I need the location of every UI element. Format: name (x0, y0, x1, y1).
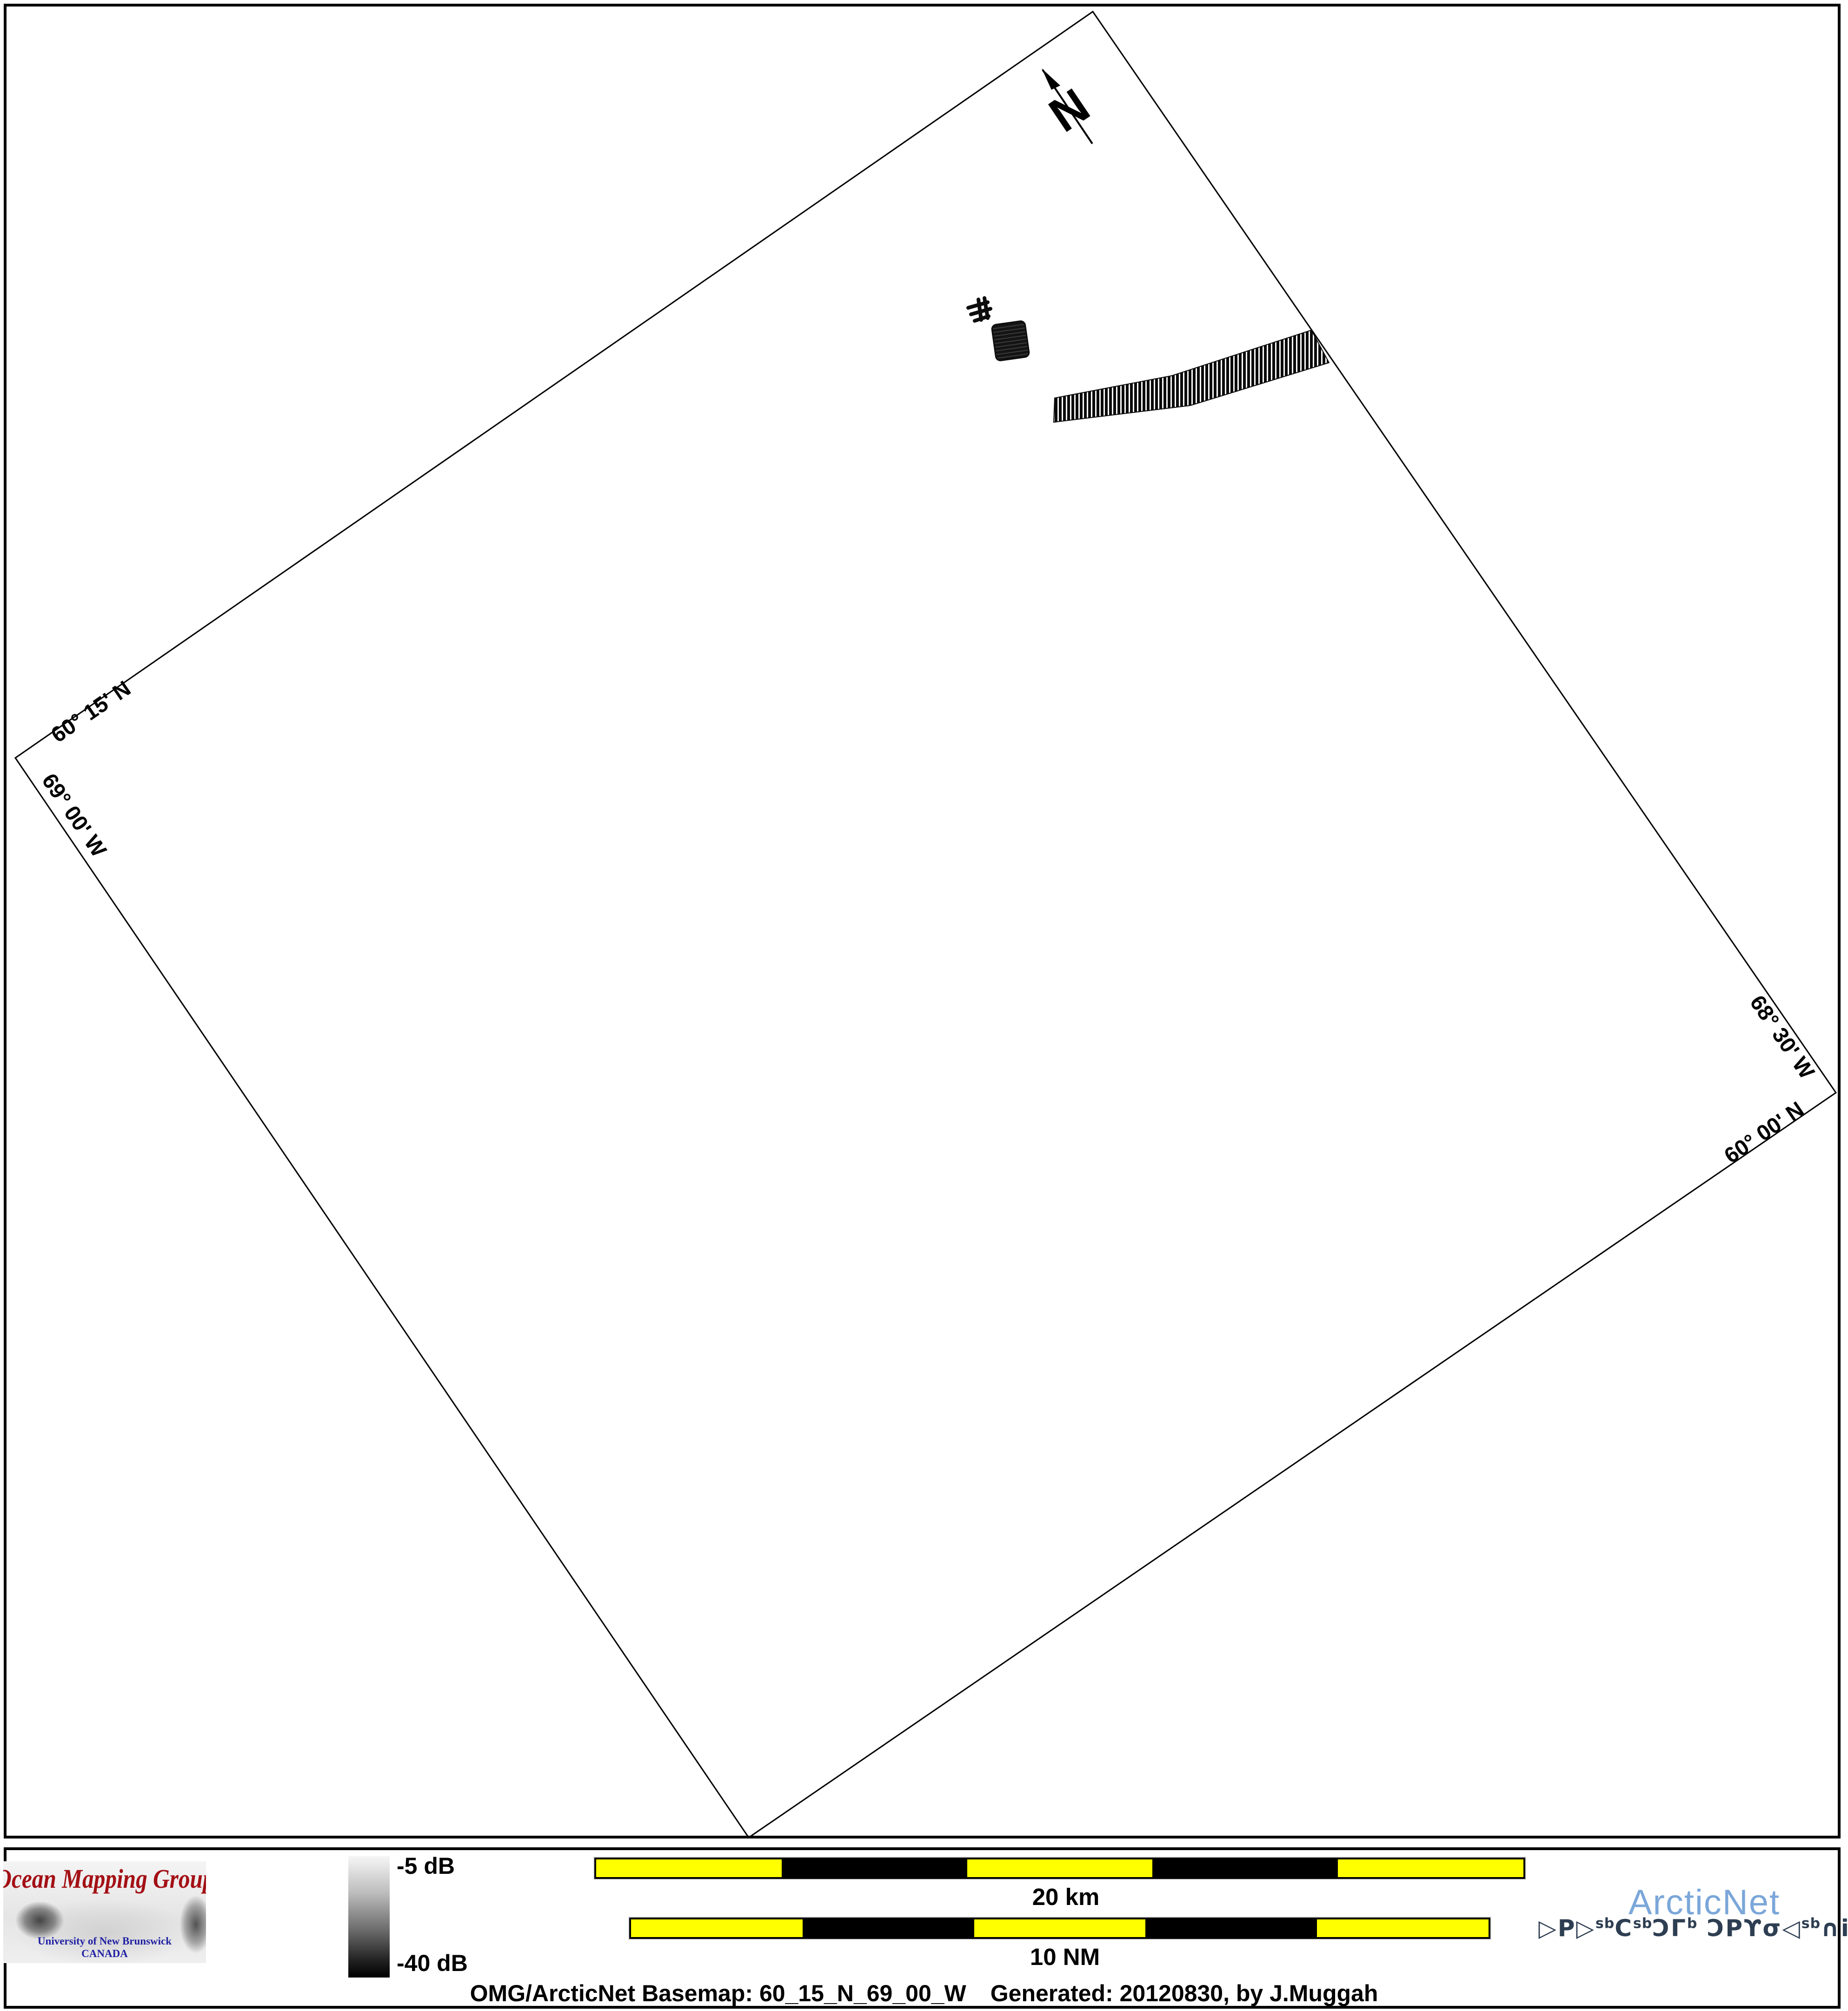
scalebar-segment (782, 1859, 967, 1877)
omg-logo-university: University of New Brunswick (3, 1935, 206, 1947)
scalebar-segment (1338, 1859, 1523, 1877)
colorbar-max-label: -5 dB (397, 1852, 455, 1879)
scalebar-segment (967, 1859, 1153, 1877)
basemap-caption-generated: Generated: 20120830, by J.Muggah (990, 1980, 1378, 2007)
basemap-page: N 60° 15' N69° 00' W68° 30' W60° 00' N O… (0, 0, 1848, 2011)
arcticnet-syllabic-segment (1697, 1915, 1707, 1942)
arcticnet-syllabic-segment: ƆPϒσ◁ (1707, 1915, 1801, 1942)
arcticnet-syllabic-segment: ∩i (1821, 1915, 1848, 1942)
scalebar-segment (1317, 1919, 1489, 1937)
scalebar-kilometres-label: 20 km (1032, 1883, 1100, 1911)
colorbar-min-label: -40 dB (397, 1950, 468, 1977)
scalebar-nautical-miles (629, 1918, 1490, 1939)
scalebar-segment (1145, 1919, 1317, 1937)
omg-logo-title: Ocean Mapping Group (3, 1863, 206, 1894)
scalebar-kilometres (594, 1858, 1525, 1879)
arcticnet-syllabic-segment: b (1687, 1915, 1697, 1931)
omg-logo: Ocean Mapping Group University of New Br… (3, 1861, 206, 1963)
arcticnet-syllabic-segment: ▷P▷ (1538, 1915, 1595, 1942)
arcticnet-syllabic-segment: C (1615, 1915, 1633, 1942)
map-panel (4, 4, 1841, 1838)
basemap-caption-title: OMG/ArcticNet Basemap: 60_15_N_69_00_W (470, 1980, 966, 2007)
arcticnet-syllabic-segment: sb (1633, 1915, 1652, 1931)
scalebar-segment (596, 1859, 782, 1877)
arcticnet-inuktitut-text: ▷P▷sbCsbƆΓb ƆPϒσ◁sb∩ic (1538, 1915, 1848, 1942)
omg-logo-country: CANADA (3, 1948, 206, 1960)
scalebar-segment (1152, 1859, 1338, 1877)
scalebar-segment (974, 1919, 1146, 1937)
scalebar-nautical-miles-label: 10 NM (1030, 1943, 1100, 1971)
arcticnet-syllabic-segment: ƆΓ (1652, 1915, 1687, 1942)
scalebar-segment (631, 1919, 803, 1937)
arcticnet-syllabic-segment: sb (1595, 1915, 1615, 1931)
scalebar-segment (803, 1919, 974, 1937)
arcticnet-syllabic-segment: sb (1801, 1915, 1821, 1931)
basemap-caption: OMG/ArcticNet Basemap: 60_15_N_69_00_W G… (0, 1980, 1848, 2007)
backscatter-colorbar (348, 1856, 390, 1978)
